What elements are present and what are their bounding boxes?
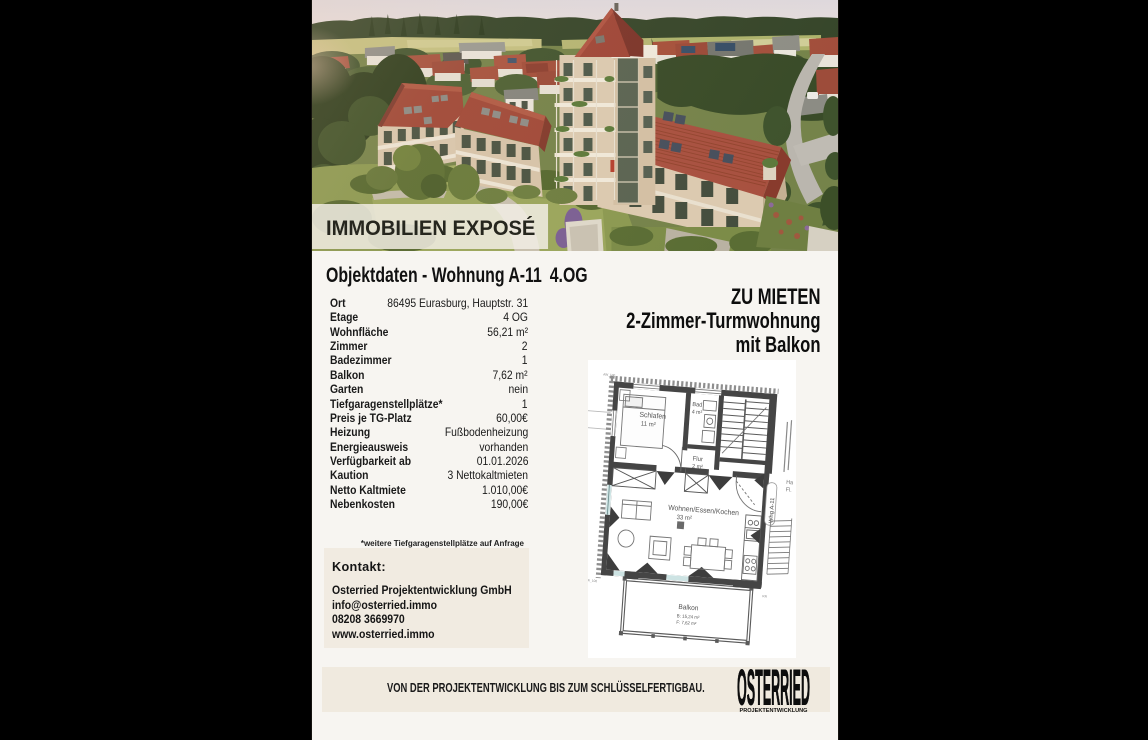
svg-text:Fl.: Fl.: [785, 487, 792, 494]
svg-text:4 m²: 4 m²: [691, 409, 702, 416]
svg-text:AW_100: AW_100: [588, 578, 597, 583]
svg-text:Ha: Ha: [786, 480, 794, 487]
svg-text:IMMOBILIEN EXPOSÉ: IMMOBILIEN EXPOSÉ: [326, 216, 536, 240]
svg-text:Bad: Bad: [692, 402, 702, 409]
svg-text:OSTERRIED: OSTERRIED: [737, 667, 810, 713]
svg-text:2 m²: 2 m²: [691, 464, 702, 471]
svg-text:PROJEKTENTWICKLUNG: PROJEKTENTWICKLUNG: [740, 708, 808, 713]
svg-text:11 m²: 11 m²: [640, 420, 655, 428]
svg-text:Flur: Flur: [692, 455, 703, 463]
svg-text:33 m²: 33 m²: [676, 514, 692, 522]
